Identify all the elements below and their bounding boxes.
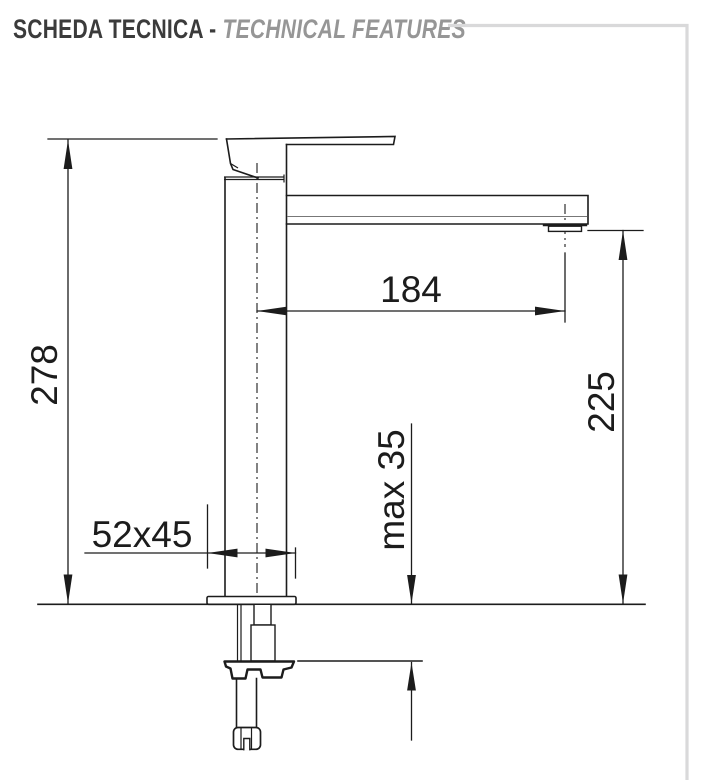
dimension-outlet-height: 225 [581,231,643,604]
technical-drawing: 278 184 225 max 35 52x45 [0,0,710,780]
arrow-down [407,575,416,604]
arrow-right [535,307,565,316]
under-counter-assembly [225,604,295,750]
body-top-rim [224,175,284,183]
page-frame-rule [448,26,687,780]
dim-label-278: 278 [24,344,65,406]
spout [287,196,589,232]
lever-bar [227,137,396,145]
arrow-up [619,231,628,261]
arrow-left [257,307,287,316]
mounting-nut [225,662,295,679]
spout-outline [287,196,589,225]
dimension-base-section: 52x45 [85,505,296,578]
dim-label-52x45: 52x45 [92,514,193,555]
dimension-deck-thickness: max 35 [371,424,416,740]
arrow-down [619,575,628,604]
supply-shank-lower [251,625,275,661]
hose-fitting-slot [244,739,250,751]
handle-front-edge [227,139,259,178]
handle-lever [227,137,396,179]
dim-label-184: 184 [380,269,442,310]
arrow-left [208,549,238,558]
aerator-body [549,226,582,231]
dim-label-225: 225 [581,371,622,433]
faucet-outline [38,137,645,751]
arrow-right [266,549,296,558]
arrow-up [64,140,73,169]
supply-shank-upper [254,604,271,625]
mounting-stud [238,604,242,661]
arrow-up [407,663,416,691]
faucet-body [224,145,287,597]
dim-label-max35: max 35 [371,429,412,550]
flex-hose [237,679,257,728]
dimension-spout-reach: 184 [257,253,565,322]
arrow-down [64,575,73,604]
base-flange [207,597,296,605]
